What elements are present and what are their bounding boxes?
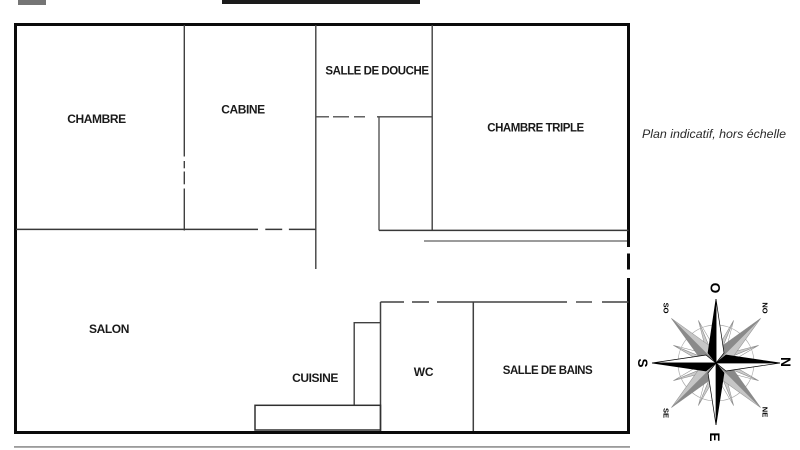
svg-text:CUISINE: CUISINE: [292, 371, 338, 385]
svg-text:CABINE: CABINE: [221, 103, 265, 117]
svg-text:O: O: [708, 283, 723, 294]
svg-text:WC: WC: [414, 365, 434, 379]
svg-text:CHAMBRE TRIPLE: CHAMBRE TRIPLE: [487, 123, 584, 135]
svg-text:N: N: [778, 357, 793, 367]
svg-text:SE: SE: [662, 408, 671, 418]
svg-text:SALLE DE BAINS: SALLE DE BAINS: [503, 365, 593, 377]
svg-text:E: E: [707, 432, 722, 441]
svg-text:Plan indicatif, hors échelle: Plan indicatif, hors échelle: [642, 127, 786, 141]
svg-text:S: S: [635, 358, 650, 367]
svg-text:SALON: SALON: [89, 322, 129, 336]
svg-text:NE: NE: [761, 407, 770, 417]
svg-text:SALLE DE DOUCHE: SALLE DE DOUCHE: [325, 66, 429, 78]
svg-text:SO: SO: [662, 303, 671, 314]
svg-text:NO: NO: [761, 302, 770, 313]
svg-text:CHAMBRE: CHAMBRE: [67, 112, 126, 126]
